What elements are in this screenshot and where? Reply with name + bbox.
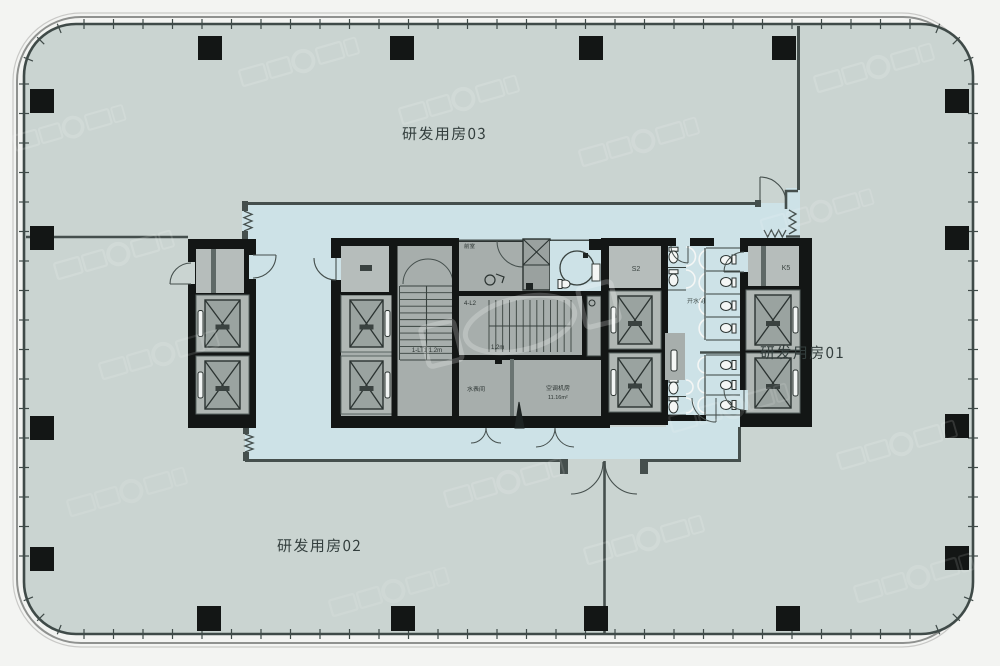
svg-text:11.16m²: 11.16m² xyxy=(548,395,568,401)
svg-text:K5: K5 xyxy=(782,265,791,272)
svg-text:4-L2: 4-L2 xyxy=(464,301,477,307)
svg-text:S2: S2 xyxy=(632,266,641,273)
